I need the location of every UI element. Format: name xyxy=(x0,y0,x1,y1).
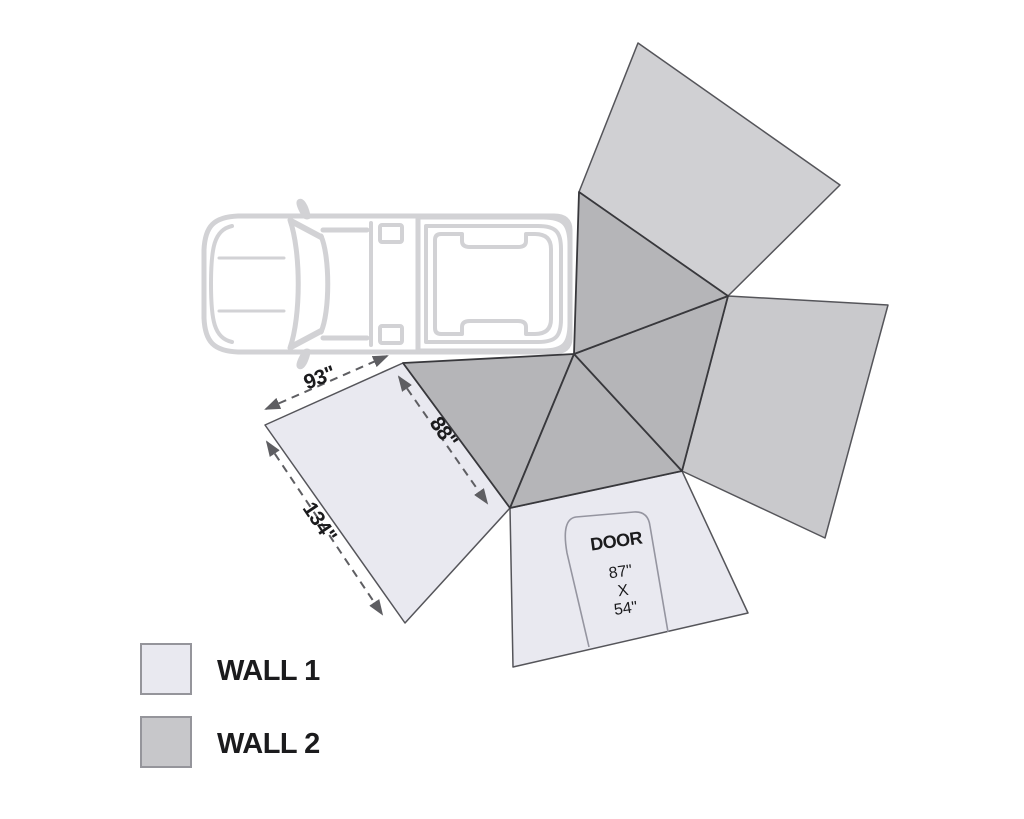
truck-cowl-curve xyxy=(290,220,298,348)
legend: WALL 1 WALL 2 xyxy=(141,644,320,767)
legend-swatch-wall1 xyxy=(141,644,191,694)
truck-windshield-curve xyxy=(321,236,328,332)
truck-bed-tiedown xyxy=(380,225,402,242)
door-width-label: 54" xyxy=(613,599,639,619)
pickup-truck-top-view-icon xyxy=(204,199,570,370)
truck-rooftop-tent-outline xyxy=(435,234,551,334)
truck-body-outline xyxy=(204,216,570,352)
truck-front-fascia xyxy=(211,226,232,342)
legend-swatch-wall2 xyxy=(141,717,191,767)
awning-diagram-svg: 93" 88" 134" DOOR 87" X 54" WALL 1 WALL … xyxy=(0,0,1024,819)
truck-bed-inner-rail xyxy=(426,226,561,342)
door-height-label: 87" xyxy=(608,562,634,582)
truck-bed-tiedown xyxy=(380,326,402,343)
awning-diagram-stage: 93" 88" 134" DOOR 87" X 54" WALL 1 WALL … xyxy=(0,0,1024,819)
dim-label-93: 93" xyxy=(301,361,339,394)
legend-label-wall1: WALL 1 xyxy=(217,655,320,687)
legend-label-wall2: WALL 2 xyxy=(217,728,320,760)
